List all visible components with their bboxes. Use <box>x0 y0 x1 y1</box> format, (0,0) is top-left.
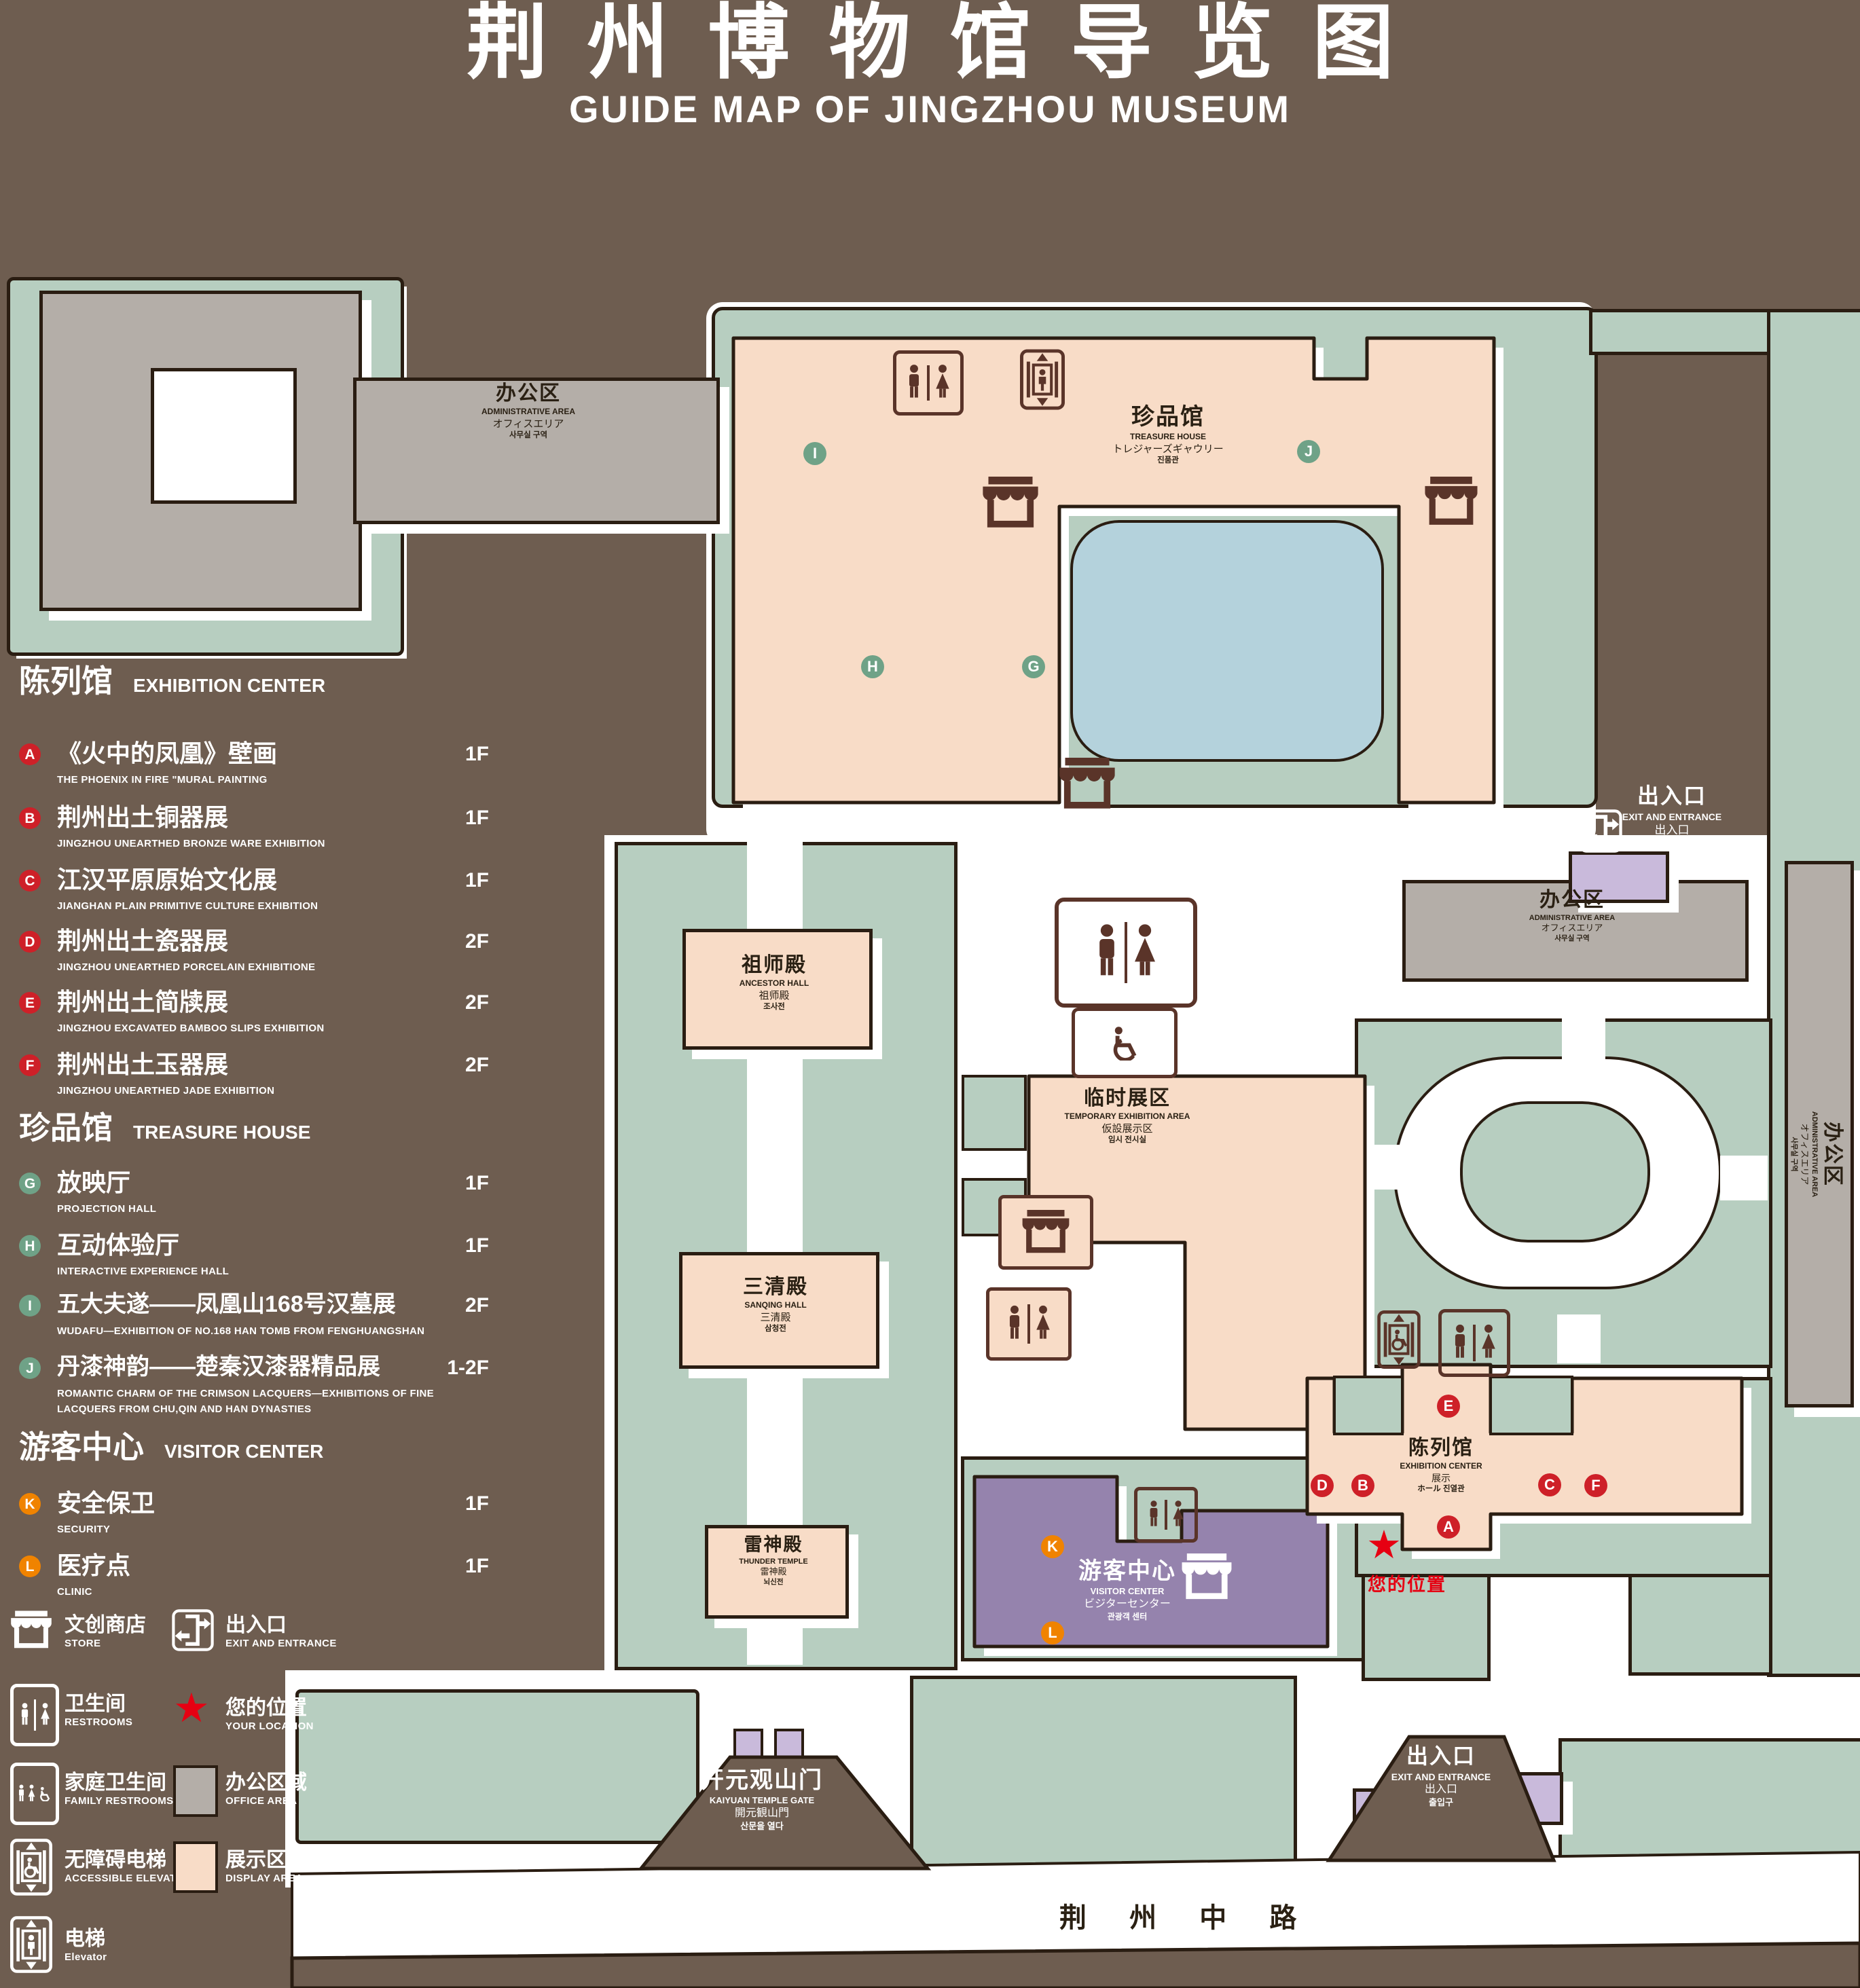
facility-zh: 您的位置 <box>225 1696 314 1720</box>
item-zh: 互动体验厅 <box>57 1233 179 1257</box>
facility-en: DISPLAY AREA <box>225 1873 307 1884</box>
item-floor: 1-2F <box>447 1357 489 1380</box>
badge-l: L <box>19 1556 41 1577</box>
item-floor: 1F <box>465 743 489 766</box>
item-en: ROMANTIC CHARM OF THE CRIMSON LACQUERS—E… <box>57 1386 437 1417</box>
label-zh: 陈列馆 <box>1400 1435 1482 1461</box>
section-title-zh: 陈列馆 <box>19 665 113 697</box>
east-entrance-label: 出入口 EXIT AND ENTRANCE 出入口 출입구 <box>1622 782 1722 849</box>
label-ja: 雷神殿 <box>739 1566 807 1578</box>
facility-zh: 卫生间 <box>65 1692 132 1716</box>
store-icon <box>10 1610 52 1650</box>
label-zh: 办公区 <box>1529 887 1616 913</box>
label-ko: ホール 진열관 <box>1400 1484 1482 1494</box>
woman-icon <box>934 364 951 402</box>
label-ko: 출입구 <box>1622 838 1722 849</box>
label-ja: 展示 <box>1400 1472 1482 1484</box>
label-en: KAIYUAN TEMPLE GATE <box>701 1795 823 1807</box>
restrooms-icon <box>986 1287 1072 1361</box>
item-floor: 1F <box>465 807 489 830</box>
item-en: THE PHOENIX IN FIRE "MURAL PAINTING <box>57 773 437 788</box>
badge-a: A <box>19 743 41 765</box>
facility-exit-label: 出入口 EXIT AND ENTRANCE <box>225 1613 337 1649</box>
label-en: SANQING HALL <box>743 1300 808 1311</box>
legend-section-treasure-house-title: 珍品馆 TREASURE HOUSE <box>19 1112 310 1143</box>
divider <box>1473 1325 1476 1361</box>
office-area-swatch <box>173 1765 218 1817</box>
man-icon <box>17 1783 26 1805</box>
legend-item-c: C 江汉平原原始文化展 JIANGHAN PLAIN PRIMITIVE CUL… <box>19 868 494 930</box>
label-ja: オフィスエリア <box>1529 923 1616 934</box>
facility-en: EXIT AND ENTRANCE <box>225 1638 337 1649</box>
label-en: ADMINISTRATIVE AREA <box>1529 913 1616 923</box>
legend-item-h: H 互动体验厅 INTERACTIVE EXPERIENCE HALL 1F <box>19 1233 494 1295</box>
woman-icon <box>27 1783 36 1805</box>
item-floor: 2F <box>465 1054 489 1077</box>
label-ko: 조사전 <box>740 1002 809 1012</box>
map-badge-c: C <box>1538 1473 1561 1496</box>
facility-zh: 电梯 <box>65 1927 107 1951</box>
facility-family-restrooms-label: 家庭卫生间 FAMILY RESTROOMS <box>65 1771 174 1807</box>
label-en: EXHIBITION CENTER <box>1400 1461 1482 1472</box>
facility-en: RESTROOMS <box>65 1716 132 1728</box>
badge-h: H <box>19 1235 41 1257</box>
label-en: TREASURE HOUSE <box>1112 432 1224 443</box>
facility-en: YOUR LOCATION <box>225 1720 314 1732</box>
badge-j: J <box>19 1357 41 1379</box>
map-badge-i: I <box>803 442 826 465</box>
office-mid-label: 办公区 ADMINISTRATIVE AREA オフィスエリア 사무실 구역 <box>1529 887 1616 944</box>
item-en: JINGZHOU EXCAVATED BAMBOO SLIPS EXHIBITI… <box>57 1021 437 1037</box>
road-name: 荆 州 中 路 <box>1059 1896 1314 1935</box>
divider <box>1125 922 1127 983</box>
accessible-restroom-icon <box>1072 1008 1178 1078</box>
facility-en: OFFICE AREA <box>225 1795 307 1807</box>
legend-item-e: E 荆州出土简牍展 JINGZHOU EXCAVATED BAMBOO SLIP… <box>19 990 494 1052</box>
label-zh: 出入口 <box>1622 782 1722 811</box>
item-floor: 2F <box>465 930 489 953</box>
map-badge-a: A <box>1437 1515 1460 1539</box>
legend-item-g: G 放映厅 PROJECTION HALL 1F <box>19 1171 494 1233</box>
elevator-icon <box>1020 349 1065 410</box>
woman-icon <box>1480 1323 1497 1363</box>
map-badge-h: H <box>861 655 884 678</box>
temporary-exhibition-label: 临时展区 TEMPORARY EXHIBITION AREA 仮設展示区 임시 … <box>1065 1085 1190 1145</box>
label-en: EXIT AND ENTRANCE <box>1391 1771 1491 1783</box>
label-en: THUNDER TEMPLE <box>739 1557 807 1566</box>
label-ko: 사무실 구역 <box>1529 934 1616 944</box>
label-ja: 出入口 <box>1391 1783 1491 1797</box>
section-title-en: TREASURE HOUSE <box>133 1122 310 1143</box>
man-icon <box>19 1701 31 1729</box>
facility-zh: 出入口 <box>225 1613 337 1638</box>
section-title-en: EXHIBITION CENTER <box>133 675 325 697</box>
ancestor-hall-label: 祖师殿 ANCESTOR HALL 祖师殿 조사전 <box>740 952 809 1012</box>
restrooms-icon <box>1134 1487 1198 1543</box>
restrooms-icon <box>10 1684 59 1746</box>
store-icon <box>998 1195 1093 1270</box>
item-en: INTERACTIVE EXPERIENCE HALL <box>57 1264 437 1280</box>
facility-zh: 展示区域 <box>225 1848 307 1873</box>
item-en: JINGZHOU UNEARTHED BRONZE WARE EXHIBITIO… <box>57 836 437 852</box>
woman-icon <box>1034 1304 1052 1344</box>
store-icon <box>1423 477 1479 527</box>
facility-zh: 办公区域 <box>225 1771 307 1795</box>
store-icon <box>981 477 1040 530</box>
item-en: PROJECTION HALL <box>57 1202 437 1217</box>
office-nw-label: 办公区 ADMINISTRATIVE AREA オフィスエリア 사무실 구역 <box>481 380 575 441</box>
item-zh: 江汉平原原始文化展 <box>57 868 277 892</box>
map-badge-b: B <box>1351 1474 1374 1497</box>
item-en: JIANGHAN PLAIN PRIMITIVE CULTURE EXHIBIT… <box>57 899 437 915</box>
divider <box>34 1699 36 1730</box>
south-entrance-label: 出入口 EXIT AND ENTRANCE 出入口 출입구 <box>1391 1742 1491 1808</box>
legend-item-b: B 荆州出土铜器展 JINGZHOU UNEARTHED BRONZE WARE… <box>19 805 494 868</box>
item-zh: 放映厅 <box>57 1171 130 1195</box>
label-ko: 사무실 구역 <box>1789 1111 1798 1198</box>
item-floor: 1F <box>465 1172 489 1195</box>
badge-i: I <box>19 1295 41 1317</box>
item-zh: 荆州出土瓷器展 <box>57 929 228 953</box>
label-ja: トレジャーズギャウリー <box>1112 443 1224 456</box>
item-zh: 《火中的凤凰》壁画 <box>57 741 277 766</box>
label-ja: 祖师殿 <box>740 989 809 1003</box>
legend-section-exhibition-center-title: 陈列馆 EXHIBITION CENTER <box>19 665 325 697</box>
label-zh: 出入口 <box>1391 1742 1491 1771</box>
thunder-temple-label: 雷神殿 THUNDER TEMPLE 雷神殿 뇌신전 <box>739 1533 807 1587</box>
gate-label: 开元观山门 KAIYUAN TEMPLE GATE 開元観山門 산문을 열다 <box>701 1765 823 1833</box>
badge-b: B <box>19 807 41 829</box>
restrooms-icon <box>1438 1309 1510 1377</box>
woman-icon <box>1131 923 1159 982</box>
item-en: JINGZHOU UNEARTHED JADE EXHIBITION <box>57 1084 437 1099</box>
badge-g: G <box>19 1173 41 1194</box>
label-ko: 출입구 <box>1391 1797 1491 1809</box>
label-zh: 珍品馆 <box>1112 402 1224 432</box>
item-en: WUDAFU—EXHIBITION OF NO.168 HAN TOMB FRO… <box>57 1324 437 1340</box>
label-ja: 仮設展示区 <box>1065 1122 1190 1136</box>
map-badge-f: F <box>1584 1474 1607 1497</box>
item-floor: 1F <box>465 1234 489 1257</box>
label-zh: 办公区 <box>481 380 575 407</box>
man-icon <box>905 364 923 402</box>
label-ja: オフィスエリア <box>1798 1111 1810 1198</box>
item-floor: 1F <box>465 869 489 892</box>
label-ja: 出入口 <box>1622 823 1722 838</box>
label-zh: 办公区 <box>1819 1111 1846 1198</box>
label-zh: 临时展区 <box>1065 1085 1190 1111</box>
man-icon <box>1451 1323 1469 1363</box>
label-zh: 开元观山门 <box>701 1765 823 1795</box>
divider <box>927 365 930 401</box>
store-icon <box>1180 1553 1233 1601</box>
item-en: CLINIC <box>57 1585 437 1600</box>
accessible-elevator-icon <box>10 1839 52 1896</box>
divider <box>1165 1500 1167 1529</box>
treasure-house-label: 珍品馆 TREASURE HOUSE トレジャーズギャウリー 진품관 <box>1112 402 1224 466</box>
map-badge-k: K <box>1041 1535 1064 1558</box>
item-floor: 2F <box>465 991 489 1014</box>
facility-zh: 文创商店 <box>65 1613 146 1638</box>
item-zh: 五大夫遂——凤凰山168号汉墓展 <box>57 1293 396 1316</box>
item-zh: 荆州出土铜器展 <box>57 805 228 830</box>
label-ko: 임시 전시실 <box>1065 1135 1190 1145</box>
display-area-swatch <box>173 1841 218 1893</box>
office-east-label: 办公区 ADMINISTRATIVE AREA オフィスエリア 사무실 구역 <box>1789 1111 1846 1198</box>
legend-item-a: A 《火中的凤凰》壁画 THE PHOENIX IN FIRE "MURAL P… <box>19 741 494 804</box>
label-zh: 祖师殿 <box>740 952 809 978</box>
label-en: ADMINISTRATIVE AREA <box>1810 1111 1819 1198</box>
legend-item-i: I 五大夫遂——凤凰山168号汉墓展 WUDAFU—EXHIBITION OF … <box>19 1293 494 1355</box>
legend-item-d: D 荆州出土瓷器展 JINGZHOU UNEARTHED PORCELAIN E… <box>19 929 494 991</box>
facility-office-area-label: 办公区域 OFFICE AREA <box>225 1771 307 1807</box>
badge-f: F <box>19 1054 41 1076</box>
elevator-icon <box>10 1916 52 1973</box>
label-ja: 開元観山門 <box>701 1807 823 1821</box>
sanqing-hall-label: 三清殿 SANQING HALL 三清殿 삼청전 <box>743 1274 808 1334</box>
map-badge-g: G <box>1022 655 1045 678</box>
item-zh: 丹漆神韵——楚秦汉漆器精品展 <box>57 1355 380 1378</box>
pond <box>1072 521 1383 760</box>
item-zh: 荆州出土玉器展 <box>57 1052 228 1077</box>
label-en: ADMINISTRATIVE AREA <box>481 407 575 418</box>
your-location-star: ★ <box>1366 1525 1402 1564</box>
map-badge-l: L <box>1041 1621 1064 1644</box>
restrooms-icon <box>893 350 964 416</box>
label-zh: 游客中心 <box>1078 1556 1176 1586</box>
legend-item-l: L 医疗点 CLINIC 1F <box>19 1553 494 1616</box>
item-floor: 2F <box>465 1294 489 1317</box>
man-icon <box>1147 1499 1161 1530</box>
facility-en: Elevator <box>65 1951 107 1963</box>
label-en: ANCESTOR HALL <box>740 978 809 989</box>
label-ko: 산문을 열다 <box>701 1821 823 1833</box>
store-icon <box>1058 758 1116 811</box>
divider <box>1027 1304 1030 1344</box>
item-zh: 医疗点 <box>57 1553 130 1578</box>
facility-zh: 家庭卫生间 <box>65 1771 174 1795</box>
legend-item-k: K 安全保卫 SECURITY 1F <box>19 1491 494 1553</box>
label-ja: 三清殿 <box>743 1311 808 1325</box>
visitor-center-label: 游客中心 VISITOR CENTER ビジターセンター 관광객 센터 <box>1078 1556 1176 1622</box>
badge-k: K <box>19 1493 41 1515</box>
badge-d: D <box>19 931 41 953</box>
map-badge-j: J <box>1297 440 1320 463</box>
map-badge-d: D <box>1311 1474 1334 1497</box>
facility-en: STORE <box>65 1638 146 1649</box>
item-zh: 安全保卫 <box>57 1491 155 1515</box>
legend-section-visitor-center-title: 游客中心 VISITOR CENTER <box>19 1431 323 1462</box>
man-icon <box>1006 1304 1023 1344</box>
label-ko: 뇌신전 <box>739 1578 807 1587</box>
legend-item-j: J 丹漆神韵——楚秦汉漆器精品展 ROMANTIC CHARM OF THE C… <box>19 1355 494 1437</box>
legend-item-f: F 荆州出土玉器展 JINGZHOU UNEARTHED JADE EXHIBI… <box>19 1052 494 1115</box>
family-restrooms-icon <box>10 1763 59 1825</box>
label-zh: 雷神殿 <box>739 1533 807 1557</box>
map-badge-e: E <box>1437 1395 1460 1418</box>
facility-restrooms-label: 卫生间 RESTROOMS <box>65 1692 132 1728</box>
item-zh: 荆州出土简牍展 <box>57 990 228 1014</box>
accessible-elevator-icon <box>1377 1310 1421 1369</box>
your-location-star: ★ <box>173 1688 210 1729</box>
label-ko: 진품관 <box>1112 456 1224 466</box>
guide-map-poster: 荆州博物馆导览图 GUIDE MAP OF JINGZHOU MUSEUM <box>0 0 1860 1988</box>
exit-icon <box>172 1608 214 1653</box>
label-ko: 삼청전 <box>743 1324 808 1334</box>
woman-icon <box>1171 1499 1185 1530</box>
section-title-zh: 珍品馆 <box>19 1112 113 1143</box>
label-en: VISITOR CENTER <box>1078 1586 1176 1598</box>
item-floor: 1F <box>465 1555 489 1578</box>
item-en: JINGZHOU UNEARTHED PORCELAIN EXHIBITIONE <box>57 960 437 976</box>
exhibition-center-label: 陈列馆 EXHIBITION CENTER 展示 ホール 진열관 <box>1400 1435 1482 1494</box>
badge-c: C <box>19 870 41 891</box>
man-icon <box>1093 923 1120 982</box>
wheelchair-icon <box>37 1786 52 1801</box>
badge-e: E <box>19 992 41 1014</box>
label-zh: 三清殿 <box>743 1274 808 1300</box>
facility-en: FAMILY RESTROOMS <box>65 1795 174 1807</box>
label-ko: 관광객 센터 <box>1078 1612 1176 1623</box>
item-floor: 1F <box>465 1492 489 1515</box>
section-title-en: VISITOR CENTER <box>164 1441 323 1462</box>
label-ko: 사무실 구역 <box>481 430 575 441</box>
section-title-zh: 游客中心 <box>19 1431 144 1462</box>
label-ja: ビジターセンター <box>1078 1598 1176 1612</box>
exit-icon <box>1579 809 1622 853</box>
facility-elevator-label: 电梯 Elevator <box>65 1927 107 1963</box>
facility-store-label: 文创商店 STORE <box>65 1613 146 1649</box>
your-location-text: 您的位置 <box>1368 1570 1446 1596</box>
store-awning-icon <box>1021 1210 1070 1255</box>
label-ja: オフィスエリア <box>481 418 575 431</box>
restrooms-icon <box>1055 898 1197 1008</box>
facility-location-label: 您的位置 YOUR LOCATION <box>225 1696 314 1732</box>
facility-display-area-label: 展示区域 DISPLAY AREA <box>225 1848 307 1884</box>
item-en: SECURITY <box>57 1522 437 1538</box>
label-en: EXIT AND ENTRANCE <box>1622 811 1722 823</box>
label-en: TEMPORARY EXHIBITION AREA <box>1065 1111 1190 1122</box>
wheelchair-icon <box>1107 1025 1142 1061</box>
woman-icon <box>39 1701 51 1729</box>
